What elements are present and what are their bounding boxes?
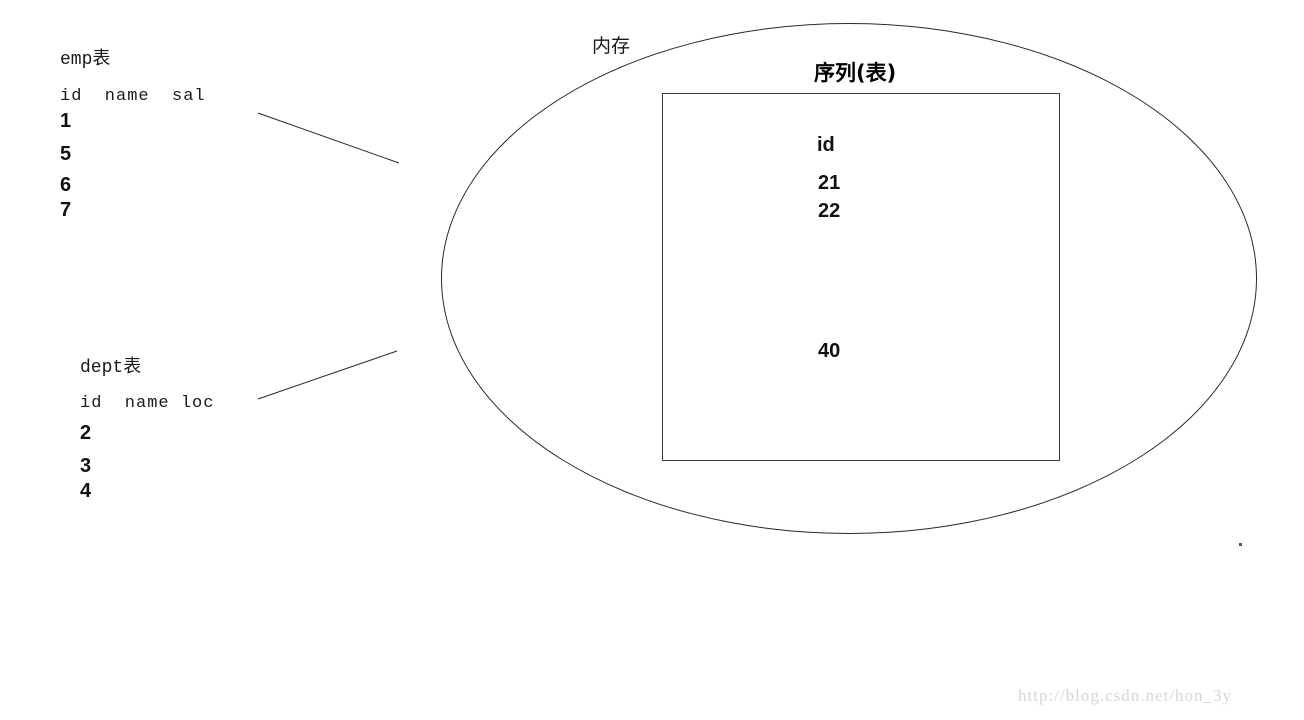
sequence-table-title: 序列(表) <box>814 57 896 87</box>
sequence-table-value: 40 <box>818 340 840 363</box>
dept-table-row: 3 <box>80 455 91 478</box>
emp-table-header: id name sal <box>60 87 206 106</box>
sequence-table-value: 22 <box>818 200 840 223</box>
dept-table-row: 4 <box>80 480 91 503</box>
dept-table-row: 2 <box>80 422 91 445</box>
emp-table-row: 7 <box>60 199 71 222</box>
sequence-table-value: 21 <box>818 172 840 195</box>
dept-table-header: id name loc <box>80 394 214 413</box>
emp-table-row: 1 <box>60 110 71 133</box>
emp-connector-line <box>258 113 399 163</box>
emp-table-row: 5 <box>60 143 71 166</box>
diagram-canvas: emp表 id name sal 1 5 6 7 dept表 id name l… <box>0 0 1304 720</box>
stray-dot <box>1239 543 1242 546</box>
dept-connector-line <box>258 351 397 399</box>
dept-table-title: dept表 <box>80 352 141 378</box>
sequence-table-rect <box>662 93 1060 461</box>
watermark-url: http://blog.csdn.net/hon_3y <box>1018 686 1232 706</box>
sequence-table-column-header: id <box>817 134 835 157</box>
emp-table-row: 6 <box>60 174 71 197</box>
memory-label: 内存 <box>592 31 630 58</box>
emp-table-title: emp表 <box>60 44 110 70</box>
